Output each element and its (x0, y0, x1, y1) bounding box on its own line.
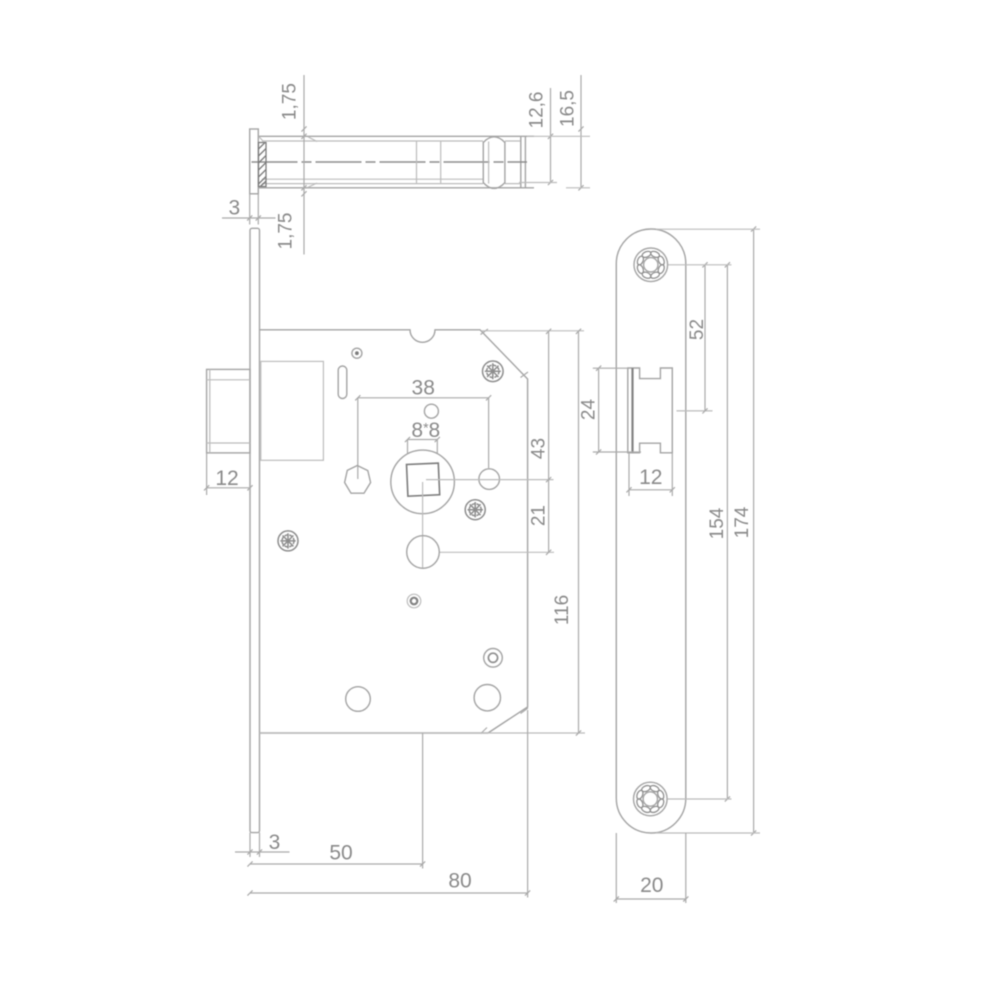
svg-text:3: 3 (229, 197, 241, 220)
svg-text:12,6: 12,6 (527, 92, 548, 129)
svg-text:20: 20 (640, 874, 663, 897)
svg-text:1,75: 1,75 (276, 213, 297, 250)
svg-text:24: 24 (579, 399, 600, 421)
svg-text:80: 80 (448, 870, 471, 893)
svg-text:3: 3 (269, 831, 281, 854)
svg-text:50: 50 (329, 842, 352, 865)
svg-text:174: 174 (732, 506, 753, 538)
svg-text:1,75: 1,75 (280, 83, 301, 120)
svg-text:16,5: 16,5 (558, 90, 579, 127)
svg-text:38: 38 (412, 377, 435, 400)
svg-text:12: 12 (215, 467, 238, 490)
svg-text:12: 12 (639, 466, 662, 489)
svg-text:21: 21 (529, 505, 550, 526)
svg-text:154: 154 (707, 507, 728, 539)
svg-text:43: 43 (529, 438, 550, 459)
svg-text:116: 116 (552, 595, 573, 625)
